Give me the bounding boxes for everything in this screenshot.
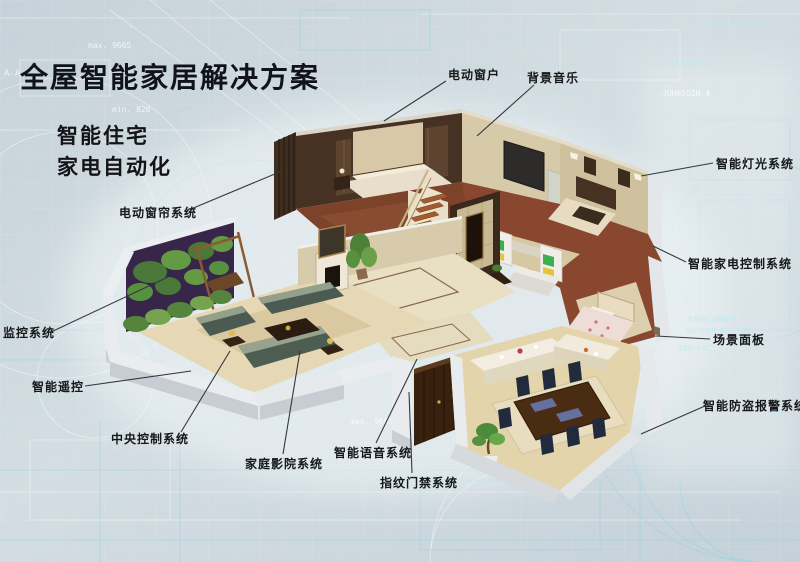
leader-scene-panel xyxy=(656,336,710,339)
leader-background-music xyxy=(477,85,534,136)
leader-smart-remote xyxy=(85,371,191,386)
smart-home-infographic: max. 9665 min. 820 DONAH 3AKOHN FASHAMME… xyxy=(0,0,800,562)
label-background-music: 背景音乐 xyxy=(527,69,579,86)
leader-smart-lighting xyxy=(641,163,713,176)
leader-electric-window xyxy=(384,81,446,121)
label-smart-remote: 智能遥控 xyxy=(32,378,84,395)
leader-electric-curtain xyxy=(191,171,282,209)
label-smart-lighting: 智能灯光系统 xyxy=(716,155,794,172)
label-electric-window: 电动窗户 xyxy=(448,66,500,83)
label-smart-appliance-control: 智能家电控制系统 xyxy=(688,255,792,272)
leader-home-theater xyxy=(283,351,300,454)
leader-monitoring xyxy=(51,277,168,332)
label-fingerprint-access: 指纹门禁系统 xyxy=(380,474,458,491)
label-monitoring: 监控系统 xyxy=(3,324,55,341)
label-electric-curtain: 电动窗帘系统 xyxy=(119,204,197,221)
label-smart-voice: 智能语音系统 xyxy=(334,444,412,461)
leader-smart-burglar-alarm xyxy=(641,406,705,434)
label-home-theater: 家庭影院系统 xyxy=(245,455,323,472)
label-smart-burglar-alarm: 智能防盗报警系统 xyxy=(703,397,800,414)
label-central-control: 中央控制系统 xyxy=(111,430,189,447)
leader-central-control xyxy=(181,351,230,432)
label-scene-panel: 场景面板 xyxy=(713,331,765,348)
leader-smart-appliance-control xyxy=(653,246,686,262)
